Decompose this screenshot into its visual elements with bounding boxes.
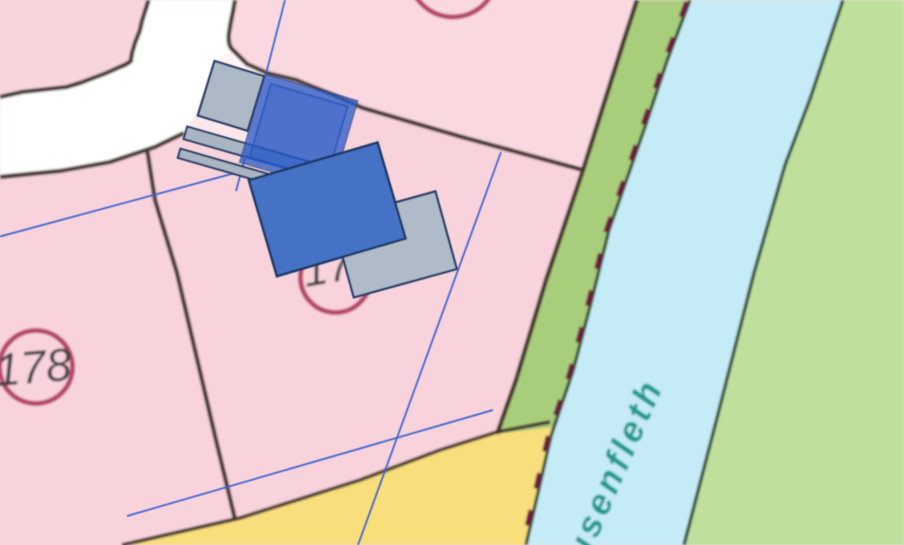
svg-text:178: 178 (0, 338, 74, 397)
